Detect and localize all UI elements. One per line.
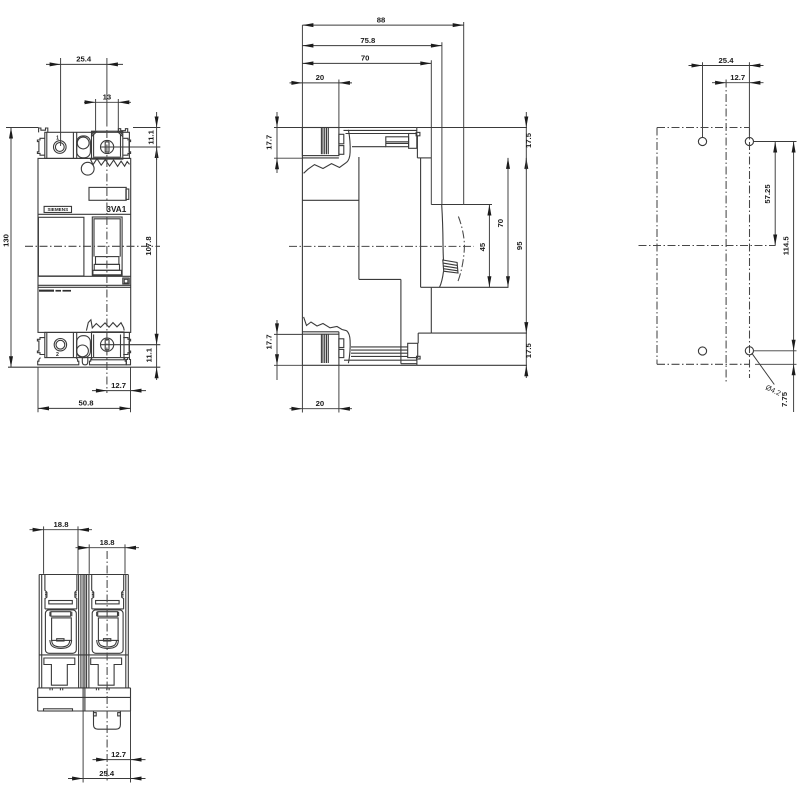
svg-text:88: 88 — [377, 15, 386, 24]
svg-text:25.4: 25.4 — [99, 769, 115, 778]
svg-text:95: 95 — [515, 241, 524, 250]
svg-text:3VA1: 3VA1 — [106, 205, 126, 214]
svg-text:17.7: 17.7 — [264, 335, 273, 350]
svg-text:75.8: 75.8 — [360, 36, 376, 45]
svg-text:13: 13 — [103, 93, 112, 102]
svg-text:12.7: 12.7 — [111, 381, 126, 390]
svg-text:1: 1 — [56, 136, 59, 142]
svg-text:12.7: 12.7 — [730, 73, 745, 82]
svg-text:25.4: 25.4 — [719, 56, 735, 65]
svg-text:SIEMENS: SIEMENS — [47, 207, 68, 212]
svg-text:20: 20 — [316, 73, 325, 82]
svg-text:17.7: 17.7 — [264, 135, 273, 150]
svg-text:114.5: 114.5 — [782, 236, 791, 256]
svg-text:17.5: 17.5 — [524, 132, 533, 148]
svg-text:18.8: 18.8 — [54, 520, 70, 529]
svg-text:20: 20 — [316, 399, 325, 408]
svg-text:18.8: 18.8 — [100, 538, 116, 547]
svg-text:11.1: 11.1 — [145, 347, 154, 362]
svg-text:50.8: 50.8 — [79, 399, 95, 408]
svg-text:11.1: 11.1 — [146, 129, 155, 144]
svg-text:107.8: 107.8 — [144, 236, 153, 256]
svg-text:12.7: 12.7 — [111, 750, 126, 759]
svg-text:130: 130 — [1, 234, 10, 247]
svg-text:70: 70 — [496, 219, 505, 228]
svg-text:57.25: 57.25 — [763, 184, 772, 204]
svg-text:17.5: 17.5 — [524, 342, 533, 358]
svg-text:7.75: 7.75 — [780, 391, 789, 407]
svg-text:70: 70 — [361, 54, 370, 63]
svg-text:25.4: 25.4 — [76, 55, 92, 64]
svg-text:2: 2 — [56, 352, 59, 358]
svg-text:45: 45 — [478, 242, 487, 251]
